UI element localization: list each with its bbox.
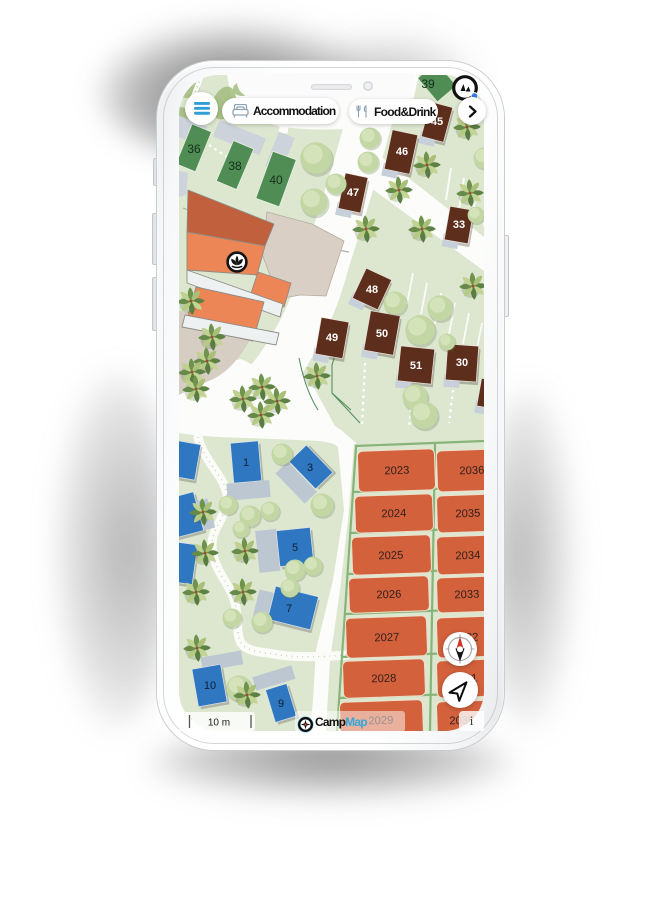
svg-text:2033: 2033 — [454, 589, 479, 602]
svg-text:2027: 2027 — [374, 632, 399, 645]
svg-text:10 m: 10 m — [208, 718, 230, 729]
svg-text:2026: 2026 — [376, 589, 401, 602]
svg-text:2036: 2036 — [459, 465, 484, 478]
svg-text:2025: 2025 — [378, 550, 403, 563]
svg-text:10: 10 — [204, 680, 216, 692]
svg-text:2024: 2024 — [381, 508, 406, 521]
svg-text:47: 47 — [347, 187, 359, 199]
svg-text:39: 39 — [421, 77, 435, 91]
svg-text:2028: 2028 — [371, 673, 396, 686]
svg-text:2034: 2034 — [455, 550, 480, 563]
svg-text:40: 40 — [269, 173, 283, 187]
svg-text:46: 46 — [396, 146, 408, 158]
svg-text:1: 1 — [243, 457, 249, 469]
svg-text:3: 3 — [307, 462, 313, 474]
svg-text:38: 38 — [228, 159, 242, 173]
svg-text:30: 30 — [456, 357, 468, 369]
svg-text:9: 9 — [278, 698, 284, 710]
svg-text:33: 33 — [453, 219, 465, 231]
svg-text:48: 48 — [366, 284, 378, 296]
svg-text:2035: 2035 — [455, 508, 480, 521]
svg-text:2023: 2023 — [384, 465, 409, 478]
svg-text:50: 50 — [376, 328, 388, 340]
svg-text:5: 5 — [292, 542, 298, 554]
svg-text:36: 36 — [187, 142, 201, 156]
svg-text:7: 7 — [286, 603, 292, 615]
svg-text:49: 49 — [326, 332, 338, 344]
svg-text:51: 51 — [410, 360, 422, 372]
